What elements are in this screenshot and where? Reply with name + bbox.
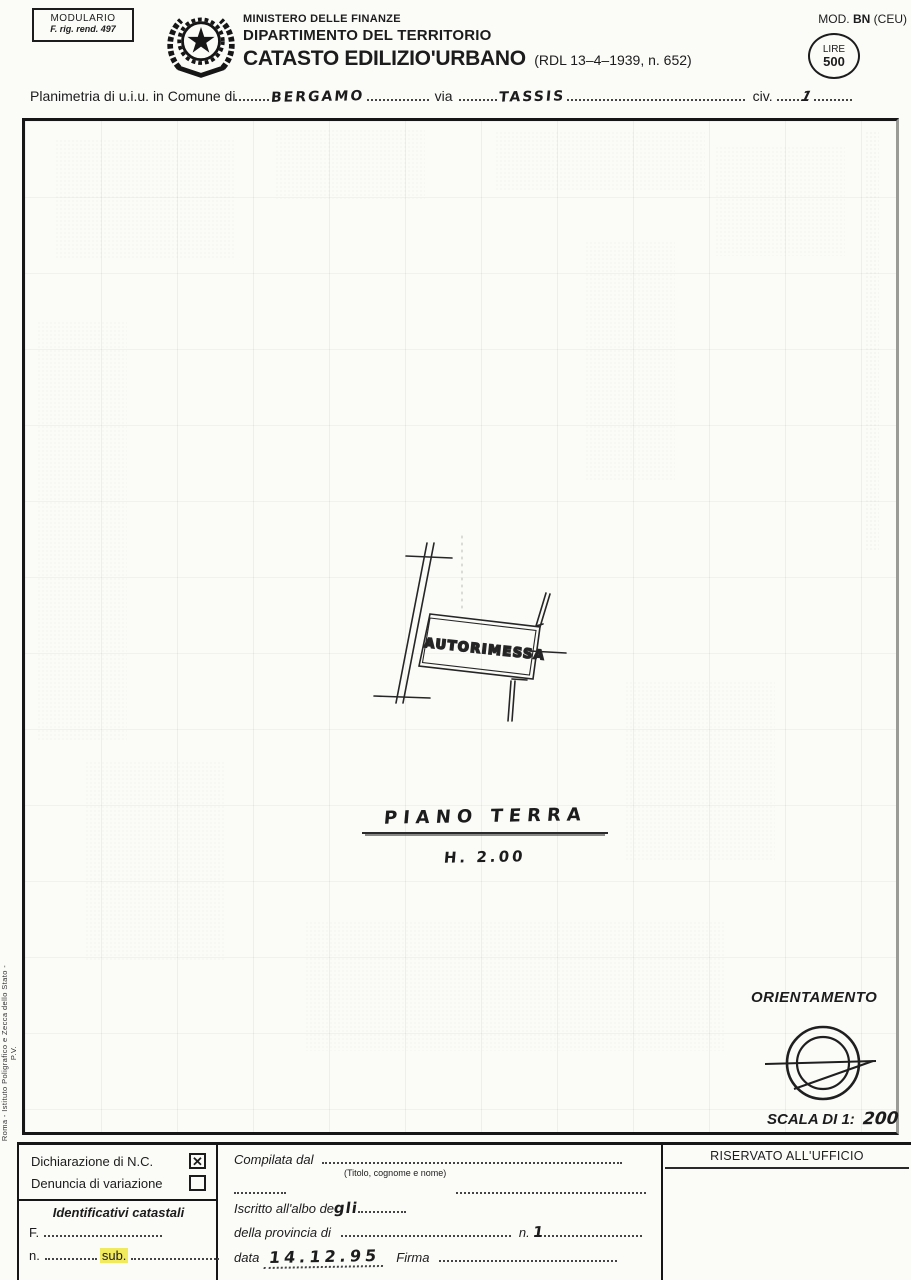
compilata-hint: (Titolo, cognome e nome) xyxy=(344,1168,647,1178)
subject-line: Planimetria di u.i.u. in Comune di BERGA… xyxy=(30,88,905,110)
orientation-label: ORIENTAMENTO xyxy=(751,989,877,1006)
dotted-leader xyxy=(456,1181,646,1194)
modulario-stamp: MODULARIO F. rig. rend. 497 xyxy=(32,8,134,42)
ministry-name: MINISTERO DELLE FINANZE xyxy=(243,13,692,25)
printer-imprint: Roma - Istituto Poligrafico e Zecca dell… xyxy=(0,958,18,1148)
scan-noise xyxy=(85,761,225,961)
dotted-leader xyxy=(567,88,745,101)
via-label: via xyxy=(435,88,453,104)
scan-noise xyxy=(305,921,725,1051)
identifier-extra-row xyxy=(29,1270,208,1280)
via-value: TASSIS xyxy=(498,88,566,105)
scan-noise xyxy=(625,681,775,861)
scan-noise xyxy=(865,131,879,551)
lire-stamp: LIRE 500 xyxy=(808,33,860,79)
compilata-label: Compilata dal xyxy=(234,1152,314,1167)
scale-label: SCALA DI 1: xyxy=(767,1111,855,1128)
floor-label: PIANO TERRA xyxy=(383,804,588,829)
subject-label: Planimetria di u.i.u. in Comune di xyxy=(30,88,235,104)
dotted-leader xyxy=(814,88,852,101)
civ-value: 1 xyxy=(797,89,816,105)
dotted-leader xyxy=(777,88,799,101)
floor-caption: PIANO TERRA H. 2.00 xyxy=(335,806,635,866)
office-section: RISERVATO ALL'UFFICIO xyxy=(661,1145,911,1280)
albo-value: gli xyxy=(333,1199,360,1217)
declaration-variazione-label: Denuncia di variazione xyxy=(31,1176,189,1191)
declaration-section: Dichiarazione di N.C. ✕ Denuncia di vari… xyxy=(19,1145,216,1201)
dotted-leader xyxy=(131,1247,219,1260)
declaration-and-identifiers: Dichiarazione di N.C. ✕ Denuncia di vari… xyxy=(17,1145,218,1280)
dotted-leader xyxy=(115,1270,207,1280)
scale-value: 200 xyxy=(862,1109,899,1130)
comune-value: BERGAMO xyxy=(271,88,366,106)
civ-label: civ. xyxy=(753,88,773,104)
n-label: n. xyxy=(29,1248,40,1263)
dotted-leader xyxy=(234,1181,286,1194)
room-label: AUTORIMESSA xyxy=(424,636,546,664)
compiler-section: Compilata dal (Titolo, cognome e nome) I… xyxy=(218,1145,661,1280)
identifiers-section: Identificativi catastali F. n. sub. xyxy=(19,1201,216,1280)
mod-code: MOD. BN (CEU) xyxy=(818,12,907,26)
firma-label: Firma xyxy=(396,1250,429,1265)
data-label: data xyxy=(234,1250,259,1265)
mod-code-value: BN xyxy=(853,12,870,26)
declaration-option-nc: Dichiarazione di N.C. ✕ xyxy=(31,1153,206,1169)
provincia-row: della provincia di n. 1 xyxy=(234,1223,647,1241)
plan-sheet: AUTORIMESSA PIANO TERRA H. 2.00 ORIENTAM… xyxy=(22,118,899,1135)
albo-row: Iscritto all'albo de gli xyxy=(234,1199,647,1217)
scan-noise xyxy=(37,321,127,741)
height-note: H. 2.00 xyxy=(443,847,526,866)
declaration-nc-label: Dichiarazione di N.C. xyxy=(31,1154,189,1169)
dotted-leader xyxy=(29,1270,93,1280)
scan-noise xyxy=(715,146,845,256)
floor-plan-sketch: AUTORIMESSA xyxy=(360,531,580,741)
data-value: 14.12.95 xyxy=(264,1246,386,1269)
albo-label: Iscritto all'albo de xyxy=(234,1201,334,1216)
modulario-ref: F. rig. rend. 497 xyxy=(34,24,132,34)
declaration-option-variazione: Denuncia di variazione xyxy=(31,1175,206,1191)
provincia-label: della provincia di xyxy=(234,1225,331,1240)
mod-prefix: MOD. xyxy=(818,12,849,26)
mod-suffix: (CEU) xyxy=(874,12,907,26)
scan-noise xyxy=(495,131,705,191)
data-firma-row: data 14.12.95 Firma xyxy=(234,1247,647,1268)
provincia-n-label: n. xyxy=(519,1225,530,1240)
identifier-n-row: n. sub. xyxy=(29,1247,208,1263)
dotted-leader xyxy=(322,1151,622,1164)
dotted-leader xyxy=(459,88,497,101)
provincia-n-value: 1 xyxy=(531,1223,545,1241)
compilata-continuation-row xyxy=(234,1181,647,1194)
scan-noise xyxy=(275,129,425,199)
italy-emblem-icon xyxy=(163,8,239,82)
checkbox-nc: ✕ xyxy=(189,1153,206,1169)
checkbox-variazione xyxy=(189,1175,206,1191)
dotted-leader xyxy=(358,1200,406,1213)
sub-label: sub. xyxy=(100,1248,129,1263)
compilata-row: Compilata dal xyxy=(234,1151,647,1167)
department-name: DIPARTIMENTO DEL TERRITORIO xyxy=(243,27,692,44)
lire-value: 500 xyxy=(823,55,845,68)
dotted-leader xyxy=(367,88,429,101)
f-label: F. xyxy=(29,1225,39,1240)
modulario-label: MODULARIO xyxy=(34,13,132,24)
identifiers-title: Identificativi catastali xyxy=(29,1205,208,1220)
reserved-office-title: RISERVATO ALL'UFFICIO xyxy=(665,1149,909,1169)
scanned-cadastral-document: MODULARIO F. rig. rend. 497 MINISTERO DE… xyxy=(0,0,911,1280)
dotted-leader xyxy=(341,1224,511,1237)
document-header: MINISTERO DELLE FINANZE DIPARTIMENTO DEL… xyxy=(243,13,692,71)
identifier-f-row: F. xyxy=(29,1224,208,1240)
dotted-leader xyxy=(544,1224,642,1237)
orientation-compass-icon xyxy=(763,1019,883,1107)
document-title: CATASTO EDILIZIO'URBANO xyxy=(243,47,526,70)
footer-form: Dichiarazione di N.C. ✕ Denuncia di vari… xyxy=(17,1142,911,1280)
scan-noise xyxy=(585,241,675,481)
dotted-leader xyxy=(45,1247,97,1260)
dotted-leader xyxy=(44,1224,162,1237)
dotted-leader xyxy=(439,1249,617,1262)
scale-row: SCALA DI 1: 200 xyxy=(767,1109,898,1129)
law-reference: (RDL 13–4–1939, n. 652) xyxy=(534,52,691,68)
scan-noise xyxy=(55,139,235,259)
dotted-leader xyxy=(235,88,269,101)
